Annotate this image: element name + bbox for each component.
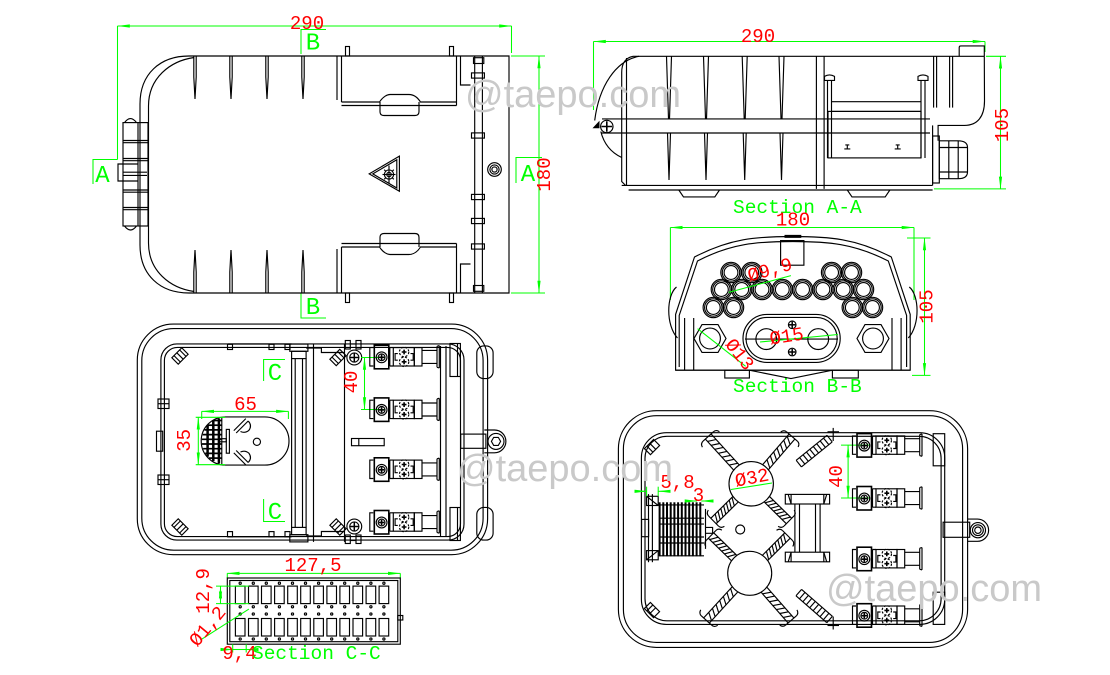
svg-text:@taepo.com: @taepo.com xyxy=(826,568,1042,610)
svg-text:180: 180 xyxy=(776,210,810,232)
svg-text:127,5: 127,5 xyxy=(284,555,341,577)
svg-text:@taepo.com: @taepo.com xyxy=(457,448,673,490)
svg-text:105: 105 xyxy=(992,108,1014,142)
svg-text:65: 65 xyxy=(234,394,257,416)
svg-text:Section B-B: Section B-B xyxy=(733,376,862,398)
svg-text:40: 40 xyxy=(826,465,848,488)
svg-text:B: B xyxy=(306,295,320,322)
svg-text:3: 3 xyxy=(693,485,704,507)
svg-text:40: 40 xyxy=(341,371,363,394)
svg-text:C: C xyxy=(268,500,282,527)
svg-text:35: 35 xyxy=(174,429,196,452)
svg-text:A: A xyxy=(521,162,536,189)
svg-text:A: A xyxy=(95,163,110,190)
svg-text:180: 180 xyxy=(534,157,556,191)
svg-text:105: 105 xyxy=(917,289,939,323)
svg-text:B: B xyxy=(306,31,320,58)
svg-text:290: 290 xyxy=(741,26,775,48)
svg-text:@taepo.com: @taepo.com xyxy=(465,74,681,116)
svg-text:C: C xyxy=(268,361,282,388)
svg-text:Section C-C: Section C-C xyxy=(252,643,381,665)
